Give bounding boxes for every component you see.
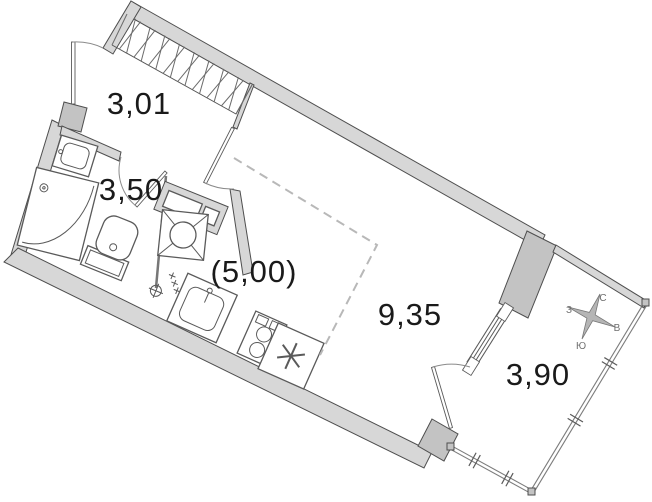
hallway-area-label: 3,01 [107,86,171,121]
kitchen-area-label: (5,00) [211,254,298,289]
glazing-post-w [447,443,454,450]
entrance-door [72,42,104,104]
living-area-label: 9,35 [378,297,442,332]
compass-rose: С Ю З В [566,293,621,352]
balcony-door [432,364,471,428]
compass-east-label: В [614,323,621,334]
glazing-post-s [528,488,535,495]
wall-hall-stub [233,83,254,129]
compass-star [568,294,615,339]
floor-plan-canvas: С Ю З В 3,01 3,50 (5,00) 9,35 3,90 [0,0,652,502]
compass-north-label: С [599,293,606,304]
compass-west-label: З [566,305,572,316]
washing-machine [158,210,209,261]
hall-door [204,127,235,189]
balcony-area-label: 3,90 [506,357,570,392]
compass-south-label: Ю [576,341,586,352]
hall-door-arc [205,183,234,189]
entrance-door-leaf [72,42,76,104]
balcony-door-leaf [432,367,453,429]
glazing-post-ne [642,299,649,306]
entrance-door-arc [73,42,103,48]
hall-door-leaf [204,127,235,183]
bathroom-area-label: 3,50 [99,172,163,207]
shower [17,167,98,260]
floor-plan: С Ю З В 3,01 3,50 (5,00) 9,35 3,90 [0,0,652,502]
